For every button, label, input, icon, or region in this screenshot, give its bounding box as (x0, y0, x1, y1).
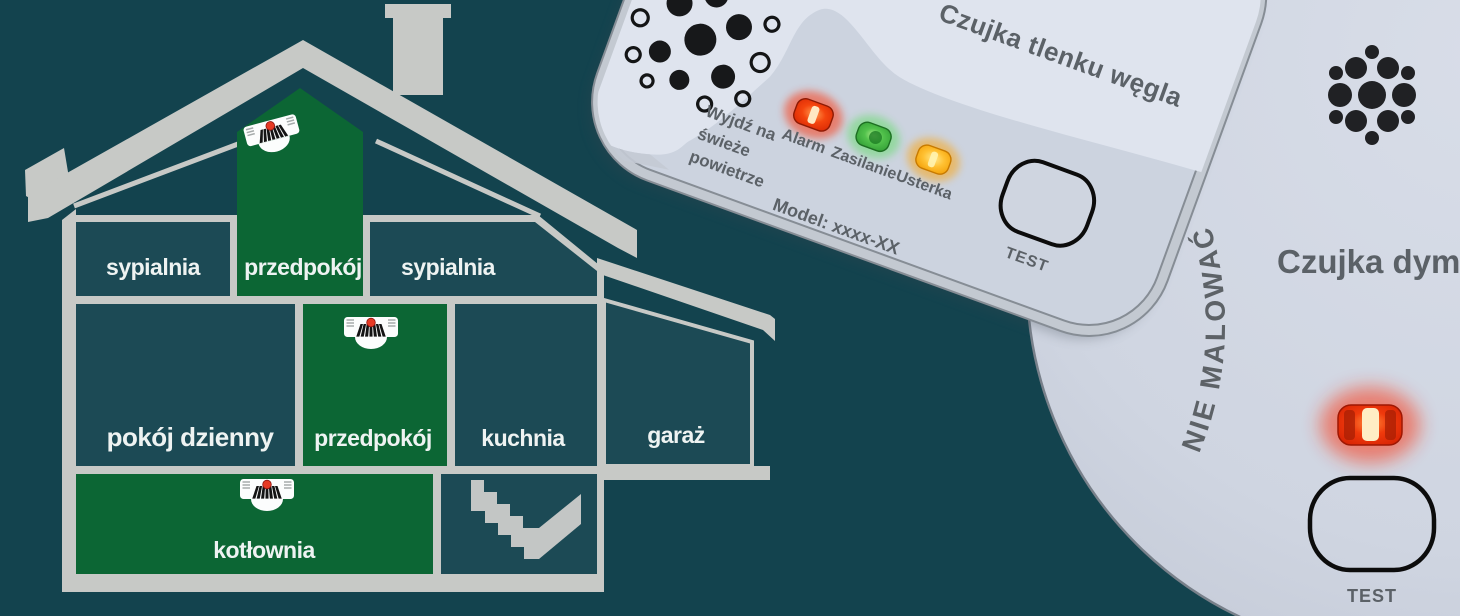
room-label-pokoj-dzienny: pokój dzienny (107, 422, 275, 452)
room-label-sypialnia-upper-right: sypialnia (401, 254, 496, 280)
room-label-kotlownia: kotłownia (213, 537, 315, 563)
room-label-przedpokoj-attic: przedpokój (244, 254, 362, 280)
smoke-test-label: TEST (1347, 586, 1397, 606)
garage-floor (604, 466, 770, 480)
room-label-sypialnia-upper-left: sypialnia (106, 254, 201, 280)
room-label-kuchnia: kuchnia (481, 425, 565, 451)
smoke-alarm-led (1320, 387, 1420, 463)
smoke-detector-title: Czujka dymu (1277, 243, 1460, 280)
scene: NIE MALOWAĆ Czujka dymu TEST (0, 0, 1460, 616)
chimney (385, 4, 451, 95)
room-label-garaz: garaż (647, 422, 705, 448)
room-label-przedpokoj-middle: przedpokój (314, 425, 432, 451)
